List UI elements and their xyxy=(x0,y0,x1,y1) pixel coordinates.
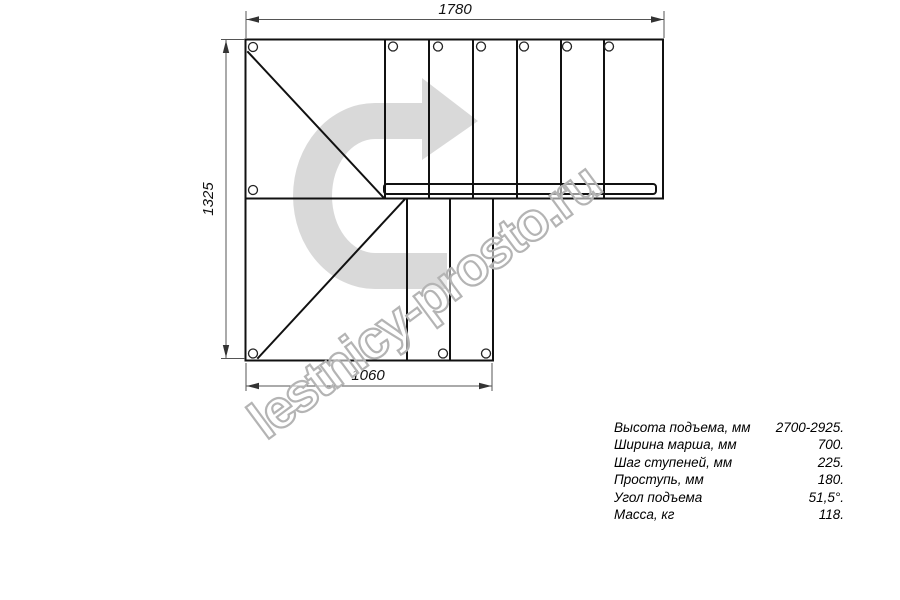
spec-label: Масса, кг xyxy=(614,506,674,523)
dim-value-top: 1780 xyxy=(438,1,472,18)
dim-arrow-icon xyxy=(479,383,492,389)
dim-arrow-icon xyxy=(247,16,260,22)
spec-value: 51,5°. xyxy=(809,489,844,506)
mount-hole xyxy=(482,349,491,358)
spec-value: 700. xyxy=(818,436,844,453)
spec-label: Высота подъема, мм xyxy=(614,419,750,436)
mount-hole xyxy=(477,42,486,51)
mount-hole xyxy=(605,42,614,51)
spec-value: 225. xyxy=(818,454,844,471)
dim-value-left: 1325 xyxy=(200,182,217,216)
mount-hole xyxy=(434,42,443,51)
spec-row: Ширина марша, мм 700. xyxy=(614,436,844,453)
spec-row: Масса, кг 118. xyxy=(614,506,844,523)
page: 1780 1325 1060 lestnicy-prosto.ru Высота… xyxy=(0,0,900,600)
mount-hole xyxy=(563,42,572,51)
dim-arrow-icon xyxy=(223,345,229,358)
mount-hole xyxy=(249,186,258,195)
mount-hole xyxy=(439,349,448,358)
spec-row: Угол подъема 51,5°. xyxy=(614,489,844,506)
spec-value: 118. xyxy=(819,506,844,523)
spec-label: Проступь, мм xyxy=(614,471,704,488)
spec-row: Высота подъема, мм 2700-2925. xyxy=(614,419,844,436)
dim-arrow-icon xyxy=(651,16,664,22)
mount-hole xyxy=(389,42,398,51)
spec-label: Угол подъема xyxy=(614,489,702,506)
spec-value: 2700-2925. xyxy=(776,419,844,436)
spec-value: 180. xyxy=(818,471,844,488)
mount-hole xyxy=(249,43,258,52)
mount-hole xyxy=(520,42,529,51)
specs-table: Высота подъема, мм 2700-2925. Ширина мар… xyxy=(614,419,844,523)
spec-label: Ширина марша, мм xyxy=(614,436,737,453)
dimension-top: 1780 xyxy=(246,1,664,38)
spec-label: Шаг ступеней, мм xyxy=(614,454,732,471)
spec-row: Шаг ступеней, мм 225. xyxy=(614,454,844,471)
dimension-left: 1325 xyxy=(200,40,245,359)
dim-arrow-icon xyxy=(223,41,229,54)
spec-row: Проступь, мм 180. xyxy=(614,471,844,488)
mount-hole xyxy=(249,349,258,358)
